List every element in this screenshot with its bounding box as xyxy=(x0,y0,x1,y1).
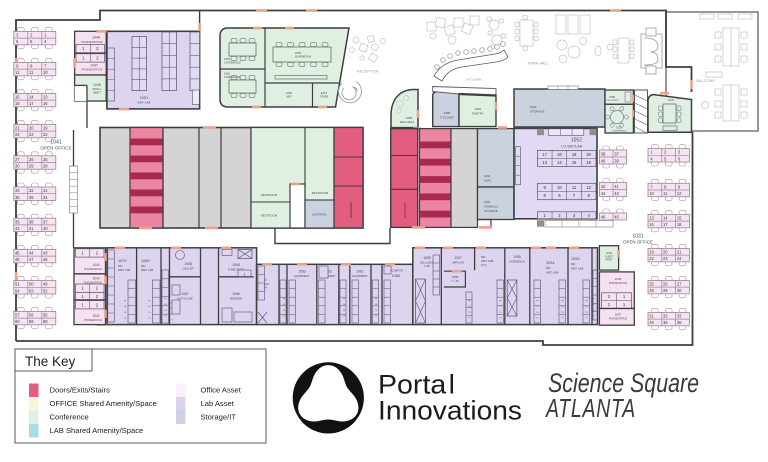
svg-text:18: 18 xyxy=(15,101,20,106)
svg-text:OVERBENCH: OVERBENCH xyxy=(509,261,524,264)
svg-text:PANTRY: PANTRY xyxy=(472,112,484,116)
svg-text:46: 46 xyxy=(601,214,606,219)
svg-text:1091: 1091 xyxy=(530,105,537,109)
svg-text:WET LAB: WET LAB xyxy=(141,268,153,272)
svg-text:1070: 1070 xyxy=(118,259,126,263)
svg-text:30: 30 xyxy=(15,164,20,169)
svg-text:MD: MD xyxy=(571,262,575,266)
svg-text:1088: 1088 xyxy=(609,95,615,99)
svg-text:13: 13 xyxy=(542,160,547,165)
svg-text:1033: 1033 xyxy=(616,126,622,130)
svg-text:24: 24 xyxy=(677,256,682,261)
svg-text:1082: 1082 xyxy=(224,57,231,61)
svg-text:IT CLOSET: IT CLOSET xyxy=(440,116,455,120)
svg-text:ELEVATORS: ELEVATORS xyxy=(403,202,407,217)
svg-text:32: 32 xyxy=(663,314,668,319)
svg-text:39: 39 xyxy=(614,158,619,163)
svg-text:48: 48 xyxy=(15,257,20,262)
svg-text:1093: 1093 xyxy=(484,200,491,204)
svg-text:1060: 1060 xyxy=(392,274,400,278)
svg-text:RECEPTION: RECEPTION xyxy=(357,70,379,74)
svg-text:15: 15 xyxy=(15,95,20,100)
svg-text:44: 44 xyxy=(601,191,606,196)
svg-text:AIRFLOW: AIRFLOW xyxy=(452,261,464,265)
svg-text:41: 41 xyxy=(29,226,34,231)
svg-text:10: 10 xyxy=(649,191,654,196)
svg-text:WET LAB: WET LAB xyxy=(118,268,130,272)
svg-text:WET LAB: WET LAB xyxy=(571,267,583,271)
svg-text:42: 42 xyxy=(601,184,606,189)
svg-text:1044: 1044 xyxy=(92,263,99,267)
svg-text:55: 55 xyxy=(43,313,48,318)
svg-text:RESTROOM: RESTROOM xyxy=(312,191,329,195)
svg-text:1048: 1048 xyxy=(92,36,100,40)
svg-text:1081: 1081 xyxy=(224,72,231,76)
svg-text:19: 19 xyxy=(43,126,48,131)
svg-text:35: 35 xyxy=(29,195,34,200)
svg-text:45: 45 xyxy=(614,214,619,219)
svg-text:PHONE/OFFICE: PHONE/OFFICE xyxy=(82,40,103,44)
svg-text:11: 11 xyxy=(663,191,668,196)
svg-text:15: 15 xyxy=(677,216,682,221)
svg-text:1063: 1063 xyxy=(298,270,306,274)
svg-text:14: 14 xyxy=(663,216,668,221)
svg-text:TOWN HALL: TOWN HALL xyxy=(527,62,548,66)
svg-text:26: 26 xyxy=(663,282,668,287)
svg-text:27: 27 xyxy=(15,157,20,162)
svg-text:COPY/PRINT: COPY/PRINT xyxy=(605,100,619,102)
svg-text:1069: 1069 xyxy=(141,259,149,263)
svg-text:29: 29 xyxy=(29,164,34,169)
svg-text:22: 22 xyxy=(43,132,48,137)
svg-text:EXIT: EXIT xyxy=(321,91,328,95)
svg-text:1065: 1065 xyxy=(232,263,240,267)
svg-text:10: 10 xyxy=(43,70,48,75)
svg-text:37: 37 xyxy=(43,219,48,224)
svg-text:OPEN OFFICE: OPEN OFFICE xyxy=(623,240,653,245)
svg-text:1051: 1051 xyxy=(140,96,148,100)
svg-text:PHONE/OFFICE: PHONE/OFFICE xyxy=(82,68,103,72)
svg-text:21: 21 xyxy=(677,250,682,255)
svg-text:1058: 1058 xyxy=(452,275,459,279)
svg-text:1068: 1068 xyxy=(184,262,192,266)
svg-text:1: 1 xyxy=(244,272,246,276)
svg-text:17: 17 xyxy=(663,222,668,227)
svg-text:20: 20 xyxy=(586,152,591,157)
svg-text:59: 59 xyxy=(29,319,34,324)
svg-text:58: 58 xyxy=(43,319,48,324)
svg-text:CONFERENCE: CONFERENCE xyxy=(224,62,241,65)
svg-text:31: 31 xyxy=(649,314,654,319)
svg-text:1053: 1053 xyxy=(571,257,579,261)
svg-text:1061: 1061 xyxy=(356,270,364,274)
svg-text:54: 54 xyxy=(15,288,20,293)
svg-text:13: 13 xyxy=(649,216,654,221)
svg-text:38: 38 xyxy=(601,151,606,156)
svg-text:1083: 1083 xyxy=(286,91,293,95)
svg-text:57: 57 xyxy=(15,313,20,318)
svg-text:The Key: The Key xyxy=(25,354,76,369)
svg-text:1084: 1084 xyxy=(295,51,302,55)
svg-text:23: 23 xyxy=(29,132,34,137)
svg-text:1034: 1034 xyxy=(606,251,613,255)
svg-text:37: 37 xyxy=(614,151,619,156)
svg-text:Storage/IT: Storage/IT xyxy=(201,413,237,422)
svg-text:1086: 1086 xyxy=(444,111,451,115)
svg-text:17: 17 xyxy=(29,101,34,106)
svg-text:32: 32 xyxy=(29,188,34,193)
svg-text:13: 13 xyxy=(43,95,48,100)
svg-text:26: 26 xyxy=(29,157,34,162)
svg-text:LAB Shared Amenity/Space: LAB Shared Amenity/Space xyxy=(50,426,144,435)
svg-text:40: 40 xyxy=(43,226,48,231)
svg-text:10: 10 xyxy=(557,185,562,190)
svg-text:1055: 1055 xyxy=(513,255,521,259)
svg-text:31: 31 xyxy=(43,188,48,193)
svg-text:25: 25 xyxy=(43,157,48,162)
svg-text:30: 30 xyxy=(677,288,682,293)
svg-text:38: 38 xyxy=(29,219,34,224)
svg-text:24: 24 xyxy=(15,132,20,137)
svg-text:LAB: LAB xyxy=(425,264,430,268)
svg-text:19: 19 xyxy=(649,250,654,255)
svg-text:FREEZER: FREEZER xyxy=(230,297,242,301)
svg-text:28: 28 xyxy=(649,288,654,293)
svg-text:27: 27 xyxy=(677,282,682,287)
svg-text:STORAGE: STORAGE xyxy=(530,110,545,114)
svg-text:RESTROOM: RESTROOM xyxy=(261,193,278,197)
svg-text:PHONE/OFFICE: PHONE/OFFICE xyxy=(84,319,102,322)
svg-text:1030: 1030 xyxy=(668,98,674,102)
svg-text:50: 50 xyxy=(29,282,34,287)
svg-text:47: 47 xyxy=(29,257,34,262)
svg-text:CHEMICAL: CHEMICAL xyxy=(484,205,499,209)
svg-text:CONFERENCE: CONFERENCE xyxy=(611,131,627,133)
svg-text:TC LAB: TC LAB xyxy=(451,280,459,283)
svg-text:1067: 1067 xyxy=(181,292,189,296)
svg-text:PHONE/OFFICE: PHONE/OFFICE xyxy=(609,318,627,321)
svg-text:LG WETLAB: LG WETLAB xyxy=(561,145,582,149)
svg-text:1087: 1087 xyxy=(475,107,482,111)
svg-text:43: 43 xyxy=(43,251,48,256)
svg-text:44: 44 xyxy=(29,251,34,256)
svg-text:ELEVATORS: ELEVATORS xyxy=(349,202,353,217)
svg-text:KITCHEN: KITCHEN xyxy=(466,78,481,82)
svg-text:BOARDROOM: BOARDROOM xyxy=(295,56,311,59)
svg-text:15: 15 xyxy=(572,160,577,165)
svg-text:Conference: Conference xyxy=(50,413,89,422)
svg-text:Doors/Exits/Stairs: Doors/Exits/Stairs xyxy=(50,386,111,395)
svg-text:53: 53 xyxy=(29,288,34,293)
svg-text:PHONE/OFFICE: PHONE/OFFICE xyxy=(609,282,627,285)
svg-text:1085: 1085 xyxy=(406,116,413,120)
svg-text:STAIRS: STAIRS xyxy=(320,96,329,99)
svg-text:22: 22 xyxy=(649,256,654,261)
svg-text:CHILLER: CHILLER xyxy=(183,267,194,271)
svg-text:Lab Asset: Lab Asset xyxy=(201,399,235,408)
svg-text:51: 51 xyxy=(15,282,20,287)
svg-text:12: 12 xyxy=(677,191,682,196)
svg-text:14: 14 xyxy=(557,160,562,165)
svg-text:46: 46 xyxy=(43,257,48,262)
svg-text:1054: 1054 xyxy=(546,261,554,265)
svg-text:14: 14 xyxy=(29,95,34,100)
svg-text:OFFICE Shared Amenity/Space: OFFICE Shared Amenity/Space xyxy=(50,399,157,408)
svg-text:EQUIPMENT: EQUIPMENT xyxy=(294,274,310,278)
svg-text:BALCONY: BALCONY xyxy=(696,79,715,83)
svg-text:PRINT: PRINT xyxy=(605,259,613,262)
svg-text:1036: 1036 xyxy=(615,277,622,281)
svg-text:RESTROOM: RESTROOM xyxy=(261,214,278,218)
svg-text:36: 36 xyxy=(677,320,682,325)
svg-text:16: 16 xyxy=(586,160,591,165)
svg-text:33: 33 xyxy=(15,188,20,193)
svg-text:18: 18 xyxy=(557,152,562,157)
svg-text:16: 16 xyxy=(43,101,48,106)
svg-text:HVAC: HVAC xyxy=(484,179,492,183)
svg-text:(TC): (TC) xyxy=(481,263,487,267)
svg-text:25: 25 xyxy=(649,282,654,287)
svg-text:60: 60 xyxy=(15,319,20,324)
svg-text:23: 23 xyxy=(663,256,668,261)
svg-text:20: 20 xyxy=(29,126,34,131)
svg-text:1066: 1066 xyxy=(232,292,240,296)
svg-text:18: 18 xyxy=(677,222,682,227)
svg-text:52: 52 xyxy=(43,288,48,293)
svg-text:20: 20 xyxy=(663,250,668,255)
svg-text:12: 12 xyxy=(15,70,20,75)
svg-text:41: 41 xyxy=(614,184,619,189)
svg-text:EQUIPMENT: EQUIPMENT xyxy=(352,274,368,278)
svg-text:45: 45 xyxy=(15,251,20,256)
svg-text:36: 36 xyxy=(15,195,20,200)
svg-text:PHONE/OFFICE: PHONE/OFFICE xyxy=(84,268,102,271)
svg-text:21: 21 xyxy=(15,126,20,131)
svg-text:39: 39 xyxy=(15,219,20,224)
svg-text:56: 56 xyxy=(29,313,34,318)
svg-text:WET LAB: WET LAB xyxy=(546,271,558,275)
svg-text:33: 33 xyxy=(677,314,682,319)
svg-text:34: 34 xyxy=(649,320,654,325)
svg-text:19: 19 xyxy=(572,152,577,157)
svg-text:1057: 1057 xyxy=(454,256,462,260)
svg-text:16: 16 xyxy=(649,222,654,227)
svg-text:ATLANTA: ATLANTA xyxy=(545,393,636,423)
svg-text:Office Asset: Office Asset xyxy=(201,386,242,395)
svg-text:MDF: MDF xyxy=(286,96,292,99)
svg-text:43: 43 xyxy=(614,191,619,196)
svg-text:42: 42 xyxy=(15,226,20,231)
svg-text:17: 17 xyxy=(542,152,547,157)
svg-text:1092: 1092 xyxy=(484,174,491,178)
svg-text:29: 29 xyxy=(663,288,668,293)
svg-text:40: 40 xyxy=(601,158,606,163)
svg-text:MD: MD xyxy=(546,266,550,270)
svg-text:34: 34 xyxy=(43,195,48,200)
svg-text:MEET: MEET xyxy=(93,91,101,95)
svg-text:WELLNESS: WELLNESS xyxy=(400,120,414,124)
svg-text:28: 28 xyxy=(43,164,48,169)
svg-text:1059: 1059 xyxy=(423,256,431,260)
svg-text:Innovations: Innovations xyxy=(378,396,522,426)
svg-text:OPEN OFFICE: OPEN OFFICE xyxy=(40,146,71,151)
svg-text:STORAGE: STORAGE xyxy=(484,209,498,213)
svg-text:1042: 1042 xyxy=(92,314,99,318)
svg-text:1043: 1043 xyxy=(92,277,99,281)
svg-text:DRY LAB: DRY LAB xyxy=(138,101,151,105)
svg-text:1052: 1052 xyxy=(571,138,582,144)
svg-text:49: 49 xyxy=(43,282,48,287)
svg-text:12: 12 xyxy=(586,185,591,190)
svg-text:CONFERENCE: CONFERENCE xyxy=(224,76,241,79)
svg-text:CELL/GENE: CELL/GENE xyxy=(420,261,435,265)
svg-text:11: 11 xyxy=(572,185,577,190)
svg-text:35: 35 xyxy=(663,320,668,325)
svg-text:1037: 1037 xyxy=(615,313,622,317)
svg-text:11: 11 xyxy=(29,70,34,75)
svg-text:JANITORIAL: JANITORIAL xyxy=(312,213,327,217)
